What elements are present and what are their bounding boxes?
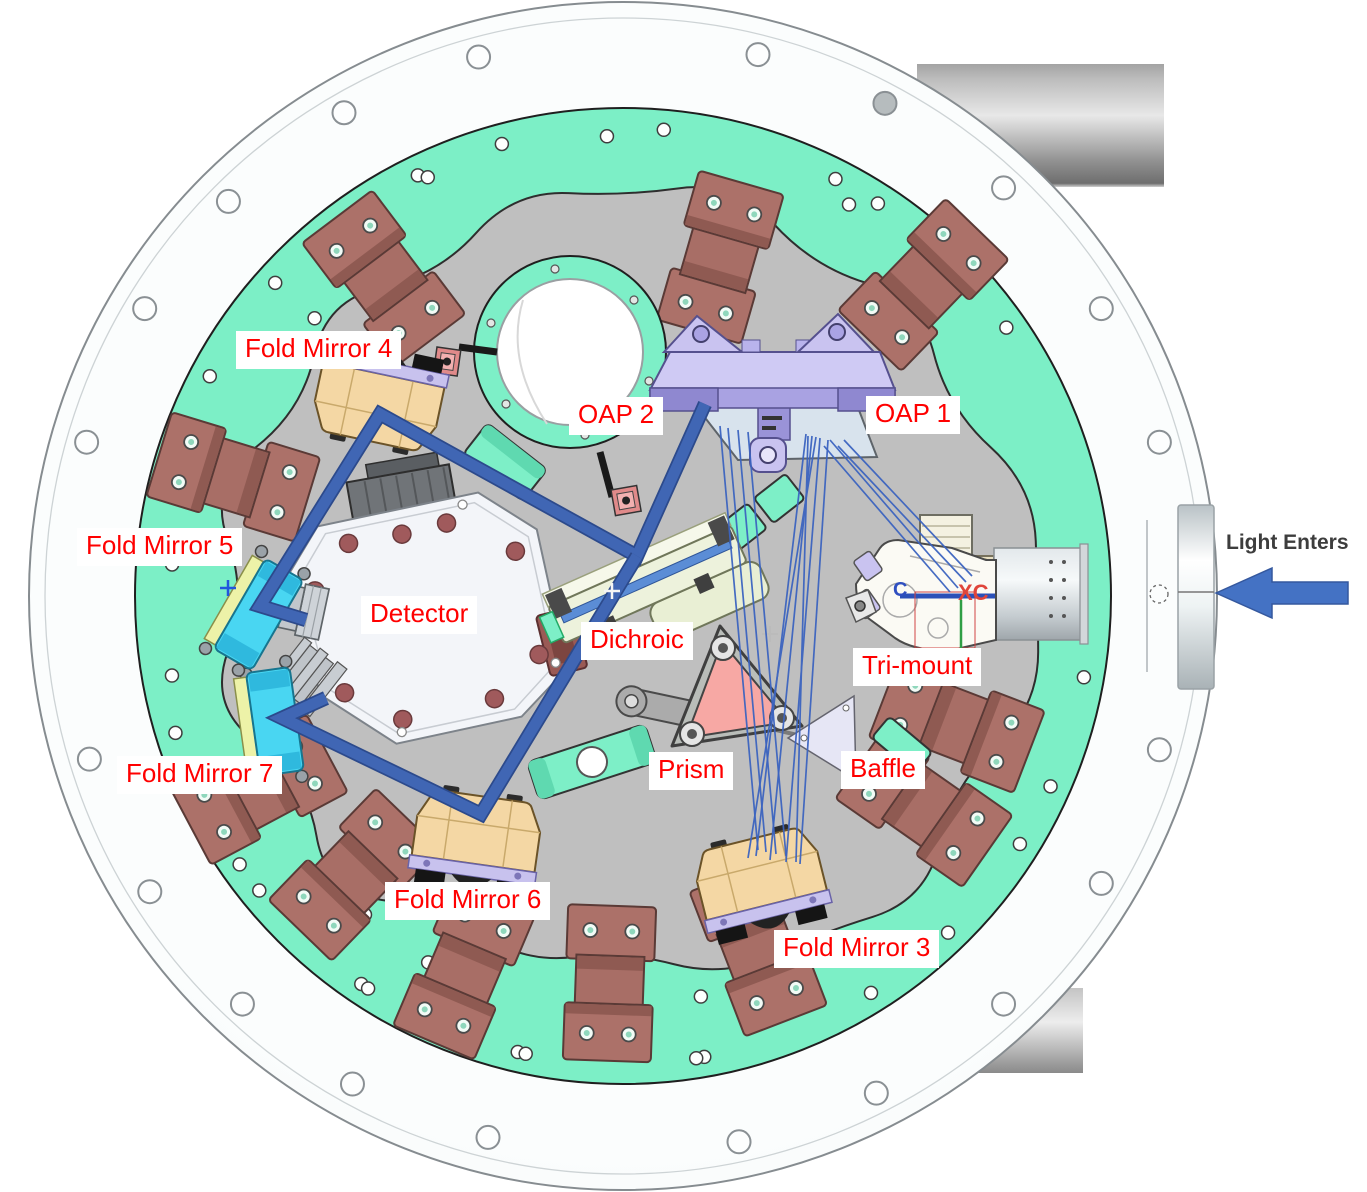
ring-screw-hole <box>690 1052 703 1065</box>
flange-bolt-hole <box>746 43 769 66</box>
flange-bolt-hole <box>1090 297 1113 320</box>
flange-bolt-hole <box>333 101 356 124</box>
flange-bolt-hole <box>1148 738 1171 761</box>
flange-bolt-hole <box>138 880 161 903</box>
ring-screw-hole <box>362 982 375 995</box>
light-enters-arrow <box>1216 568 1348 618</box>
clamp-bracket <box>563 904 656 1062</box>
ring-screw-hole <box>165 669 178 682</box>
ring-screw-hole <box>865 986 878 999</box>
ring-screw-hole <box>233 858 246 871</box>
label-dichroic: Dichroic <box>581 622 693 660</box>
flange-bolt-hole <box>992 993 1015 1016</box>
flange-bolt-hole <box>1090 872 1113 895</box>
flange-bolt-hole <box>873 92 896 115</box>
flange-bolt-hole <box>1148 431 1171 454</box>
ring-screw-hole <box>843 198 856 211</box>
ring-screw-hole <box>600 130 613 143</box>
ring-screw-hole <box>657 123 670 136</box>
label-fold-mirror-5: Fold Mirror 5 <box>77 528 242 566</box>
label-baffle: Baffle <box>841 751 925 789</box>
label-fold-mirror-6: Fold Mirror 6 <box>385 882 550 920</box>
flange-bolt-hole <box>477 1126 500 1149</box>
ring-screw-hole <box>169 726 182 739</box>
ring-screw-hole <box>1000 321 1013 334</box>
flange-bolt-hole <box>992 176 1015 199</box>
label-fold-mirror-7: Fold Mirror 7 <box>117 756 282 794</box>
flange-bolt-hole <box>133 297 156 320</box>
ring-screw-hole <box>829 173 842 186</box>
label-fold-mirror-4: Fold Mirror 4 <box>236 331 401 369</box>
ring-screw-hole <box>269 276 282 289</box>
ring-screw-hole <box>942 926 955 939</box>
optical-bench-cad-diagram: XC C Fold Mirror 4 OAP 2 OAP 1 Fold Mirr… <box>0 0 1367 1192</box>
flange-bolt-hole <box>217 190 240 213</box>
label-tri-mount: Tri-mount <box>853 648 981 686</box>
flange-bolt-hole <box>467 46 490 69</box>
label-prism: Prism <box>649 752 733 790</box>
label-fold-mirror-3: Fold Mirror 3 <box>774 930 939 968</box>
flange-bolt-hole <box>231 993 254 1016</box>
ring-screw-hole <box>253 884 266 897</box>
label-light-enters: Light Enters <box>1226 531 1349 555</box>
label-detector: Detector <box>361 596 477 634</box>
cad-label-c: C <box>893 579 907 601</box>
ring-screw-hole <box>308 312 321 325</box>
ring-screw-hole <box>871 197 884 210</box>
label-oap-1: OAP 1 <box>866 396 960 434</box>
flange-bolt-hole <box>341 1073 364 1096</box>
cad-label-xc: XC <box>958 580 989 605</box>
ring-screw-hole <box>1044 780 1057 793</box>
entrance-tube <box>994 548 1086 640</box>
ring-screw-hole <box>519 1047 532 1060</box>
ring-screw-hole <box>495 137 508 150</box>
flange-bolt-hole <box>865 1082 888 1105</box>
ring-screw-hole <box>694 990 707 1003</box>
ring-screw-hole <box>1013 838 1026 851</box>
flange-bolt-hole <box>78 748 101 771</box>
ring-screw-hole <box>203 370 216 383</box>
diagram-canvas: XC C <box>0 0 1367 1192</box>
label-oap-2: OAP 2 <box>569 397 663 435</box>
flange-bolt-hole <box>75 431 98 454</box>
flange-bolt-hole <box>728 1130 751 1153</box>
ring-screw-hole <box>1077 671 1090 684</box>
ring-screw-hole <box>421 171 434 184</box>
